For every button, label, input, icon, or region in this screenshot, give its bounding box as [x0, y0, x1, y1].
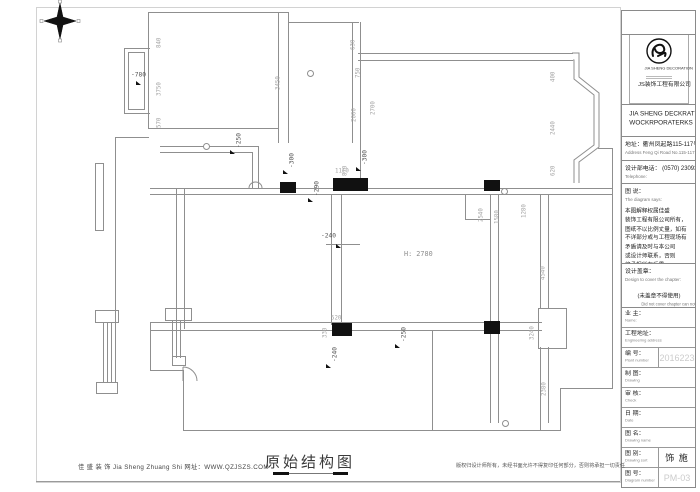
wall-segment — [107, 322, 108, 383]
level-flag-label: -240 — [332, 347, 338, 362]
wall-segment — [172, 365, 186, 366]
hinge-circle — [502, 420, 509, 427]
wall-segment — [288, 22, 359, 23]
level-flag-label: -300 — [289, 153, 295, 168]
wall-segment — [560, 389, 561, 431]
company-logo: JIA SHENG DECORATION JS装饰工程有限公司 — [629, 35, 689, 105]
dimension-label: 330 — [322, 328, 328, 338]
wall-segment — [115, 137, 116, 326]
wall-segment — [95, 163, 96, 231]
phone-section: 设计部电话： (0570) 2309348 Telephone: — [622, 161, 695, 184]
stamp-section: 设计盖章： Design to cover the chapter: (未盖章不… — [622, 264, 695, 308]
row-label: 图 别： — [625, 449, 649, 457]
company-name-line1: JIA SHENG DECKRATE — [629, 110, 687, 117]
diagram-notes-label-cn: 图 说： — [625, 187, 675, 195]
diagram-notes-section: 图 说： The diagram says: 本图解释权属佳盛 装饰工程有限公司… — [622, 184, 695, 264]
level-flag-icon — [395, 344, 400, 348]
row-sublabel: Plant number — [625, 358, 642, 363]
company-name-line2: WOCKRPORATERKS — [629, 119, 687, 126]
row-value: 2016223 — [658, 348, 695, 367]
wall-segment — [144, 52, 145, 110]
wall-segment — [165, 308, 192, 309]
row-label: 编 号： — [625, 349, 649, 357]
wall-segment — [288, 12, 289, 143]
address-en: Address Feng Qi Road No.115-117 — [625, 150, 663, 155]
row-sublabel: Name: — [625, 318, 660, 323]
level-flag-label: -240 — [321, 233, 336, 239]
dimension-label: 3450 — [275, 76, 281, 90]
level-flag-icon — [230, 150, 235, 154]
level-flag-label: -250 — [236, 133, 242, 148]
hinge-circle — [307, 70, 314, 77]
title-block-row: 审 核：Check — [622, 388, 695, 408]
dimension-label: 620 — [550, 166, 556, 176]
address-cn: 地址：衢州凤起路115-117号 — [625, 140, 675, 148]
wall-segment — [95, 230, 104, 231]
wall-segment — [540, 194, 541, 309]
wall-segment — [128, 52, 145, 53]
structural-column — [484, 180, 500, 191]
wall-segment — [183, 430, 561, 431]
sheet-bottom-rule — [36, 481, 620, 482]
dimension-label: 570 — [156, 118, 162, 128]
wall-segment — [150, 194, 613, 195]
address-section: 地址：衢州凤起路115-117号 Address Feng Qi Road No… — [622, 137, 695, 162]
level-flag-label: -780 — [131, 72, 146, 78]
title-block-spare-cell — [622, 11, 695, 35]
title-block-rows: 业 主：Name:工程地址：Engineering address编 号：Pla… — [622, 308, 695, 487]
dimension-label: 2380 — [541, 382, 547, 396]
wall-segment — [165, 320, 192, 321]
level-flag-icon — [283, 170, 288, 174]
dimension-label: 2440 — [550, 121, 556, 135]
title-block-row: 图 号：Diagram numberPM-03 — [622, 468, 695, 487]
dimension-label: 4540 — [540, 266, 546, 280]
logo-section: JIA SHENG DECORATION JS装饰工程有限公司 — [622, 35, 695, 106]
title-block-row: 制 图：Drawing — [622, 368, 695, 388]
wall-segment — [560, 388, 613, 389]
wall-segment — [548, 347, 549, 423]
wall-segment — [103, 322, 104, 383]
drawing-title: 原始结构图 — [240, 451, 380, 472]
level-flag-icon — [336, 244, 341, 248]
title-block: JIA SHENG DECORATION JS装饰工程有限公司 JIA SHEN… — [621, 10, 696, 488]
row-label: 业 主： — [625, 309, 677, 317]
row-value: PM-03 — [658, 468, 695, 487]
title-block-row: 编 号：Plant number2016223 — [622, 348, 695, 368]
wall-segment — [124, 48, 125, 114]
ceiling-height-label: H: 2780 — [404, 250, 433, 258]
floor-plan: H: 2780 84037505703450630750200027004002… — [0, 0, 700, 492]
row-label: 图 号： — [625, 469, 649, 477]
wall-segment — [183, 370, 184, 431]
wall-segment — [185, 356, 186, 366]
dimension-label: 3750 — [156, 82, 162, 96]
wall-segment — [150, 370, 184, 371]
dimension-label: 1280 — [521, 204, 527, 218]
wall-segment — [150, 188, 613, 189]
row-sublabel: Drawing sort — [625, 458, 642, 463]
dimension-label: 2000 — [351, 108, 357, 122]
copyright-text: 版权归设计师所有，未经书面允许不得复印任何部分，否则将承担一切责任 — [456, 462, 610, 469]
title-underline-mid — [289, 473, 333, 474]
wall-segment — [111, 322, 112, 383]
dimension-label: 2540 — [478, 208, 484, 222]
wall-segment — [95, 163, 104, 164]
structural-column — [484, 321, 500, 334]
wall-segment — [252, 152, 253, 189]
dimension-label: 840 — [156, 38, 162, 48]
dimension-label: 400 — [550, 72, 556, 82]
wall-segment — [172, 356, 173, 366]
row-sublabel: Drawing name — [625, 438, 660, 443]
wall-segment — [148, 12, 149, 129]
wall-segment — [358, 53, 573, 54]
wall-segment — [598, 148, 613, 149]
wall-segment — [96, 382, 118, 383]
structural-column — [333, 178, 368, 191]
phone-cn: 设计部电话： (0570) 2309348 — [625, 164, 675, 172]
wall-segment — [490, 194, 491, 423]
wall-segment — [172, 356, 186, 357]
title-block-row: 日 期：Date — [622, 408, 695, 428]
row-sublabel: Date — [625, 418, 660, 423]
wall-segment — [465, 194, 466, 220]
diagram-notes-text: 本图解释权属佳盛 装饰工程有限公司所有， 图纸不以比例丈量，如有 不详部分或与工… — [625, 207, 692, 264]
dimension-label: 2700 — [370, 101, 376, 115]
wall-segment — [128, 109, 145, 110]
row-label: 审 核： — [625, 389, 677, 397]
level-flag-icon — [136, 81, 141, 85]
logo-company-name: JS装饰工程有限公司 — [638, 80, 680, 88]
wall-segment — [150, 322, 151, 371]
stamp-note-en: Did not cover chapter can not use — [641, 302, 676, 307]
company-name: JIA SHENG DECKRATE WOCKRPORATERKS — [622, 105, 695, 136]
wall-segment — [96, 393, 118, 394]
wall-segment — [548, 194, 549, 309]
row-label: 日 期： — [625, 409, 677, 417]
wall-segment — [176, 320, 177, 358]
wall-segment — [96, 382, 97, 394]
title-underline-right — [333, 472, 348, 475]
diagram-notes-label-en: The diagram says: — [625, 197, 663, 202]
stamp-label-en: Design to cover the chapter: — [625, 277, 663, 282]
title-block-row: 工程地址：Engineering address — [622, 328, 695, 348]
wall-segment — [358, 60, 573, 61]
wall-segment — [103, 163, 104, 231]
wall-segment — [124, 113, 150, 114]
row-sublabel: Drawing — [625, 378, 660, 383]
wall-segment — [498, 194, 499, 423]
dimension-label: 1110 — [335, 168, 349, 174]
wall-segment — [124, 48, 150, 49]
drawing-sheet: H: 2780 84037505703450630750200027004002… — [0, 0, 700, 492]
structural-column — [332, 323, 352, 336]
row-sublabel: Check — [625, 398, 660, 403]
row-label: 图 名： — [625, 429, 677, 437]
logo-divider — [642, 76, 676, 79]
wall-segment — [612, 148, 613, 389]
wall-segment — [258, 146, 259, 189]
wall-segment — [117, 382, 118, 394]
level-flag-label: -290 — [314, 181, 320, 196]
dimension-label: 750 — [355, 68, 361, 78]
wall-segment — [95, 310, 119, 311]
level-flag-icon — [326, 364, 331, 368]
dimension-label: 1580 — [494, 210, 500, 224]
dimension-label: 630 — [350, 40, 356, 50]
wall-segment — [341, 194, 342, 325]
level-flag-label: -250 — [401, 327, 407, 342]
hinge-circle — [203, 143, 210, 150]
stamp-label-cn: 设计盖章： — [625, 267, 675, 275]
wall-segment — [128, 52, 129, 110]
phone-en: Telephone: — [625, 174, 663, 179]
row-sublabel: Diagram number — [625, 478, 642, 483]
wall-segment — [115, 322, 116, 383]
title-block-row: 图 别：Drawing sort饰 施 — [622, 448, 695, 468]
row-value: 饰 施 — [658, 448, 695, 467]
hinge-circle — [501, 188, 508, 195]
stamp-note-cn: (未盖章不得使用) — [635, 292, 683, 300]
wall-segment — [180, 320, 181, 358]
wall-segment — [172, 320, 173, 358]
level-flag-icon — [308, 198, 313, 202]
row-sublabel: Engineering address — [625, 338, 660, 343]
row-label: 工程地址： — [625, 329, 677, 337]
wall-segment — [148, 12, 289, 13]
wall-segment — [331, 194, 332, 325]
level-flag-label: -300 — [362, 150, 368, 165]
wall-segment — [326, 244, 360, 245]
dimension-label: 3240 — [529, 326, 535, 340]
wall-segment — [115, 137, 149, 138]
logo-caption: JIA SHENG DECORATION — [644, 66, 673, 71]
title-block-row: 业 主：Name: — [622, 308, 695, 328]
wall-segment — [432, 330, 433, 431]
title-underline-left — [273, 472, 289, 475]
structural-column — [280, 182, 296, 193]
wall-segment — [148, 128, 279, 129]
wall-segment — [160, 152, 252, 153]
level-flag-icon — [356, 167, 361, 171]
logo-emblem-icon — [644, 37, 674, 65]
duct-shaft — [538, 308, 567, 349]
dimension-label: 520 — [331, 315, 341, 321]
row-label: 制 图： — [625, 369, 677, 377]
title-block-row: 图 名：Drawing name — [622, 428, 695, 448]
